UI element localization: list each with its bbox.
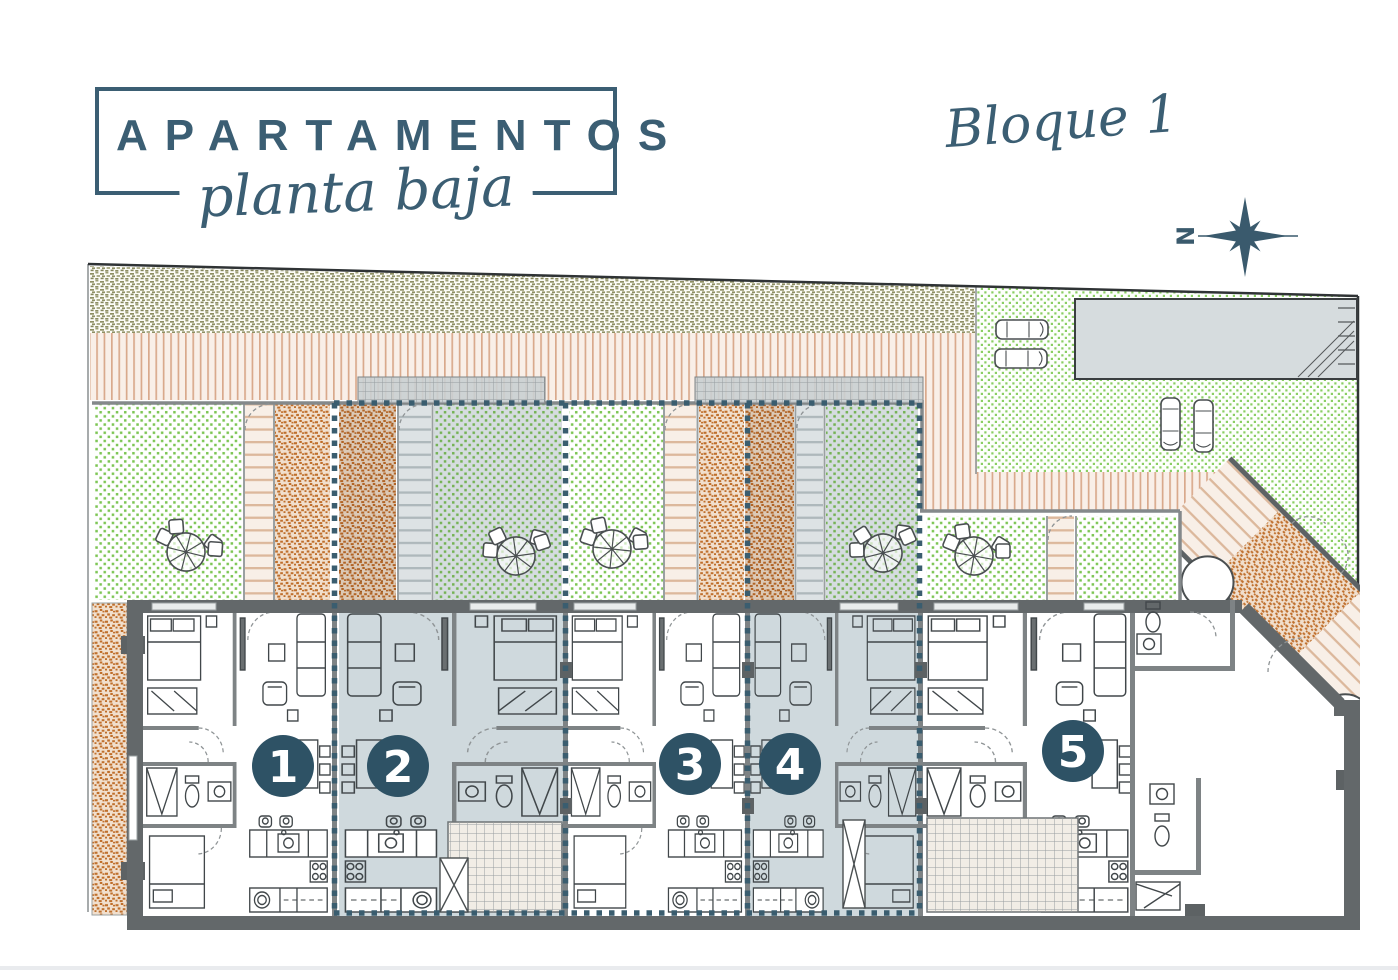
svg-text:1: 1	[268, 742, 299, 793]
svg-text:2: 2	[383, 742, 414, 793]
car-icon	[995, 349, 1047, 368]
compass-letter: N	[1172, 226, 1200, 246]
terrace-lawn	[826, 404, 918, 600]
terrace-lawn	[434, 404, 562, 600]
terrace-gravel	[745, 404, 794, 600]
unit-badge-5[interactable]: 5	[1042, 720, 1104, 782]
unit-badge-1[interactable]: 1	[252, 735, 314, 797]
page-subtitle: planta baja	[179, 154, 534, 231]
svg-text:5: 5	[1058, 727, 1089, 778]
terrace-gravel	[275, 404, 330, 600]
terrace-stairs	[797, 404, 823, 600]
page-title: APARTAMENTOS	[99, 111, 613, 161]
walkway-column	[922, 400, 977, 512]
terrace-lawn	[94, 404, 242, 600]
floor-plan-page: APARTAMENTOS planta baja Bloque 1	[0, 0, 1398, 980]
pergola-grid	[358, 377, 545, 403]
terrace-unit-1	[94, 404, 330, 600]
car-icon	[1194, 400, 1213, 452]
car-icon	[996, 320, 1048, 339]
compass-rose-icon: N	[1172, 197, 1298, 277]
car-icon	[1161, 398, 1180, 450]
terrace-gravel	[339, 404, 396, 600]
terrace-stairs	[665, 404, 696, 600]
terrace-lawn	[569, 404, 663, 600]
svg-text:4: 4	[775, 740, 806, 791]
svg-text:3: 3	[675, 740, 706, 791]
unit-badge-2[interactable]: 2	[367, 735, 429, 797]
unit-badge-4[interactable]: 4	[759, 733, 821, 795]
terrace-stairs	[1048, 516, 1074, 600]
unit-badge-3[interactable]: 3	[659, 733, 721, 795]
page-bottom-rule	[0, 966, 1398, 970]
parking-ramp	[1075, 299, 1357, 379]
pergola-grid	[695, 377, 923, 403]
terrace-lawn	[1077, 516, 1176, 600]
terrace-unit-3	[569, 404, 744, 600]
terrace-gravel	[699, 404, 744, 600]
terrace-stairs	[399, 404, 431, 600]
terrace-stairs	[245, 404, 273, 600]
title-box: APARTAMENTOS planta baja	[95, 87, 617, 195]
